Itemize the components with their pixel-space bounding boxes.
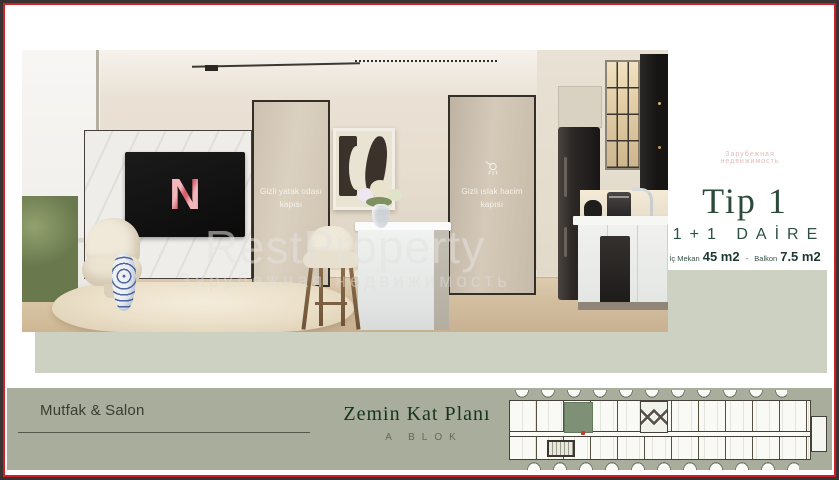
door-label: Gizli ıslak hacim kapısı: [450, 186, 534, 212]
room-label-underline: [18, 432, 310, 433]
faucet: [632, 188, 653, 219]
watermark-tile: Зарубежная недвижимость: [702, 151, 798, 165]
balcony-area-label: Balkon: [754, 254, 777, 263]
stool-crossbar: [315, 302, 347, 305]
flower-bloom: [370, 180, 390, 197]
type-title: Tip 1: [657, 183, 833, 219]
floor-plan: [505, 390, 827, 470]
page-frame: N Gizli yatak odası kapısı: [3, 3, 836, 477]
door-label-line: kapısı: [254, 199, 328, 212]
door-label: Gizli yatak odası kapısı: [254, 186, 328, 212]
apartment-info-panel: Tip 1 1+1 DAİRE İç Mekan 45 m2 - Balkon …: [657, 183, 833, 264]
interior-render: N Gizli yatak odası kapısı: [22, 50, 668, 332]
spec-separator: -: [746, 254, 749, 263]
room-label: Mutfak & Salon: [40, 402, 145, 419]
door-label-line: Gizli ıslak hacim: [450, 186, 534, 199]
brochure-page: N Gizli yatak odası kapısı: [0, 0, 839, 480]
footer-bar: Mutfak & Salon Zemin Kat Planı A BLOK: [7, 388, 832, 470]
interior-area-label: İç Mekan: [669, 254, 699, 263]
apartment-type: 1+1 DAİRE: [657, 226, 833, 244]
shower-icon: [450, 159, 534, 182]
watermark-subtitle: Зарубежная недвижимость: [22, 271, 668, 293]
glass-upper-cabinet: [605, 60, 641, 170]
plan-marker-dot: [581, 431, 585, 435]
netflix-logo: N: [169, 173, 201, 217]
black-upper-cabinet: [640, 54, 668, 192]
ceiling-vent: [205, 65, 218, 71]
door-label-line: kapısı: [450, 199, 534, 212]
watermark-title: RestProperty: [22, 220, 668, 274]
plan-end-block: [811, 416, 827, 452]
balcony-area-value: 7.5 m2: [780, 249, 820, 264]
door-label-line: Gizli yatak odası: [254, 186, 328, 199]
interior-area-value: 45 m2: [703, 249, 740, 264]
plan-stairs: [547, 440, 575, 457]
coffee-machine: [607, 192, 631, 218]
cabinet-toe-kick: [578, 302, 668, 310]
plan-balconies-bottom: [521, 459, 799, 470]
area-specs: İç Mekan 45 m2 - Balkon 7.5 m2: [657, 249, 833, 264]
plan-unit-highlight: [564, 402, 593, 433]
plan-elevator-core: [640, 401, 668, 433]
cabinet-over-fridge: [558, 86, 602, 128]
ceiling-spot-track: [355, 60, 497, 62]
